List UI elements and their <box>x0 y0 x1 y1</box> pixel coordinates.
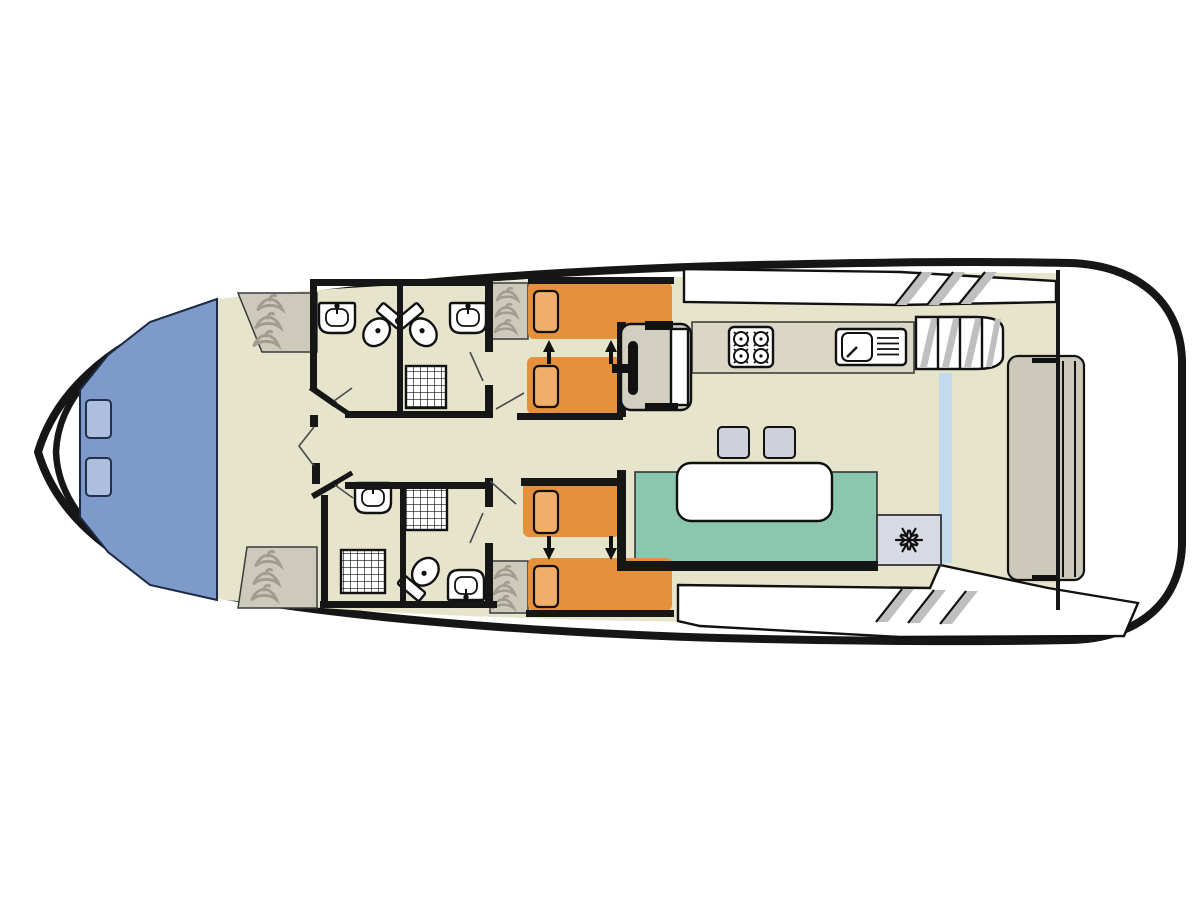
pillow <box>534 566 558 607</box>
stool <box>764 427 795 458</box>
saloon-aft-wall <box>1056 270 1060 610</box>
stool <box>718 427 749 458</box>
sink-icon <box>319 303 355 333</box>
galley-stairs <box>916 317 1003 369</box>
boat-floor-plan <box>0 0 1200 900</box>
bow-hatch <box>86 458 111 496</box>
steering-column <box>612 364 632 373</box>
burner-icon <box>734 349 748 363</box>
sink-icon <box>448 570 484 600</box>
burner-icon <box>734 332 748 346</box>
pillow <box>534 366 558 407</box>
pillow <box>534 291 558 332</box>
shower-tray <box>341 550 385 593</box>
shower-tray <box>406 366 446 408</box>
stove <box>729 327 773 367</box>
sliding-door <box>1008 356 1084 580</box>
helm-station <box>612 321 691 411</box>
pillow <box>534 491 558 533</box>
helm-panel <box>671 329 688 405</box>
dinette-table <box>677 463 832 521</box>
floor-plan-canvas <box>0 0 1200 900</box>
sink-icon <box>450 303 486 333</box>
fridge <box>877 515 941 565</box>
burner-icon <box>754 349 768 363</box>
kitchen-sink <box>836 329 906 365</box>
bow-hatch <box>86 400 111 438</box>
shower-tray <box>404 486 447 530</box>
burner-icon <box>754 332 768 346</box>
